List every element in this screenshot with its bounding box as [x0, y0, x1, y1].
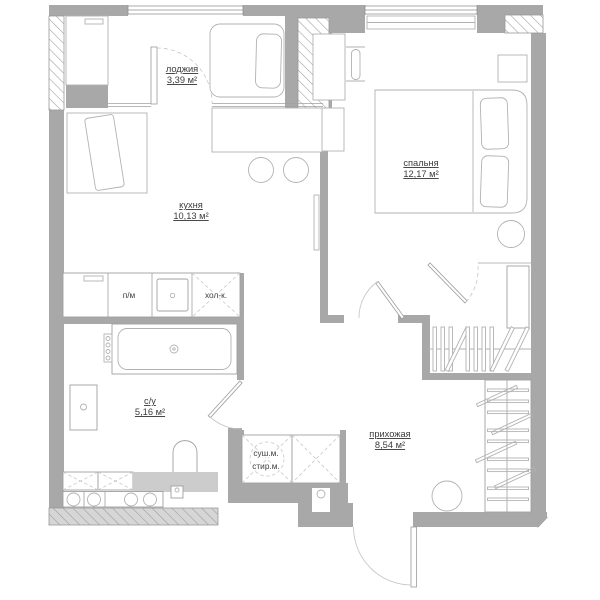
loggia-window [128, 5, 243, 17]
bathroom-label: с/у [144, 396, 156, 406]
bathroom-door [208, 381, 242, 429]
kitchen-label: кухня [179, 200, 203, 210]
hallway-wardrobe [475, 380, 535, 512]
pouf [432, 481, 462, 511]
desk-chair [352, 50, 361, 80]
former-balcony-door-frame [151, 47, 157, 104]
low-cabinet [322, 108, 344, 151]
loggia-area: 3,39 м² [167, 75, 197, 85]
kitchen-area: 10,13 м² [173, 211, 208, 221]
hallway-area: 8,54 м² [375, 440, 405, 450]
bedroom-area: 12,17 м² [403, 169, 438, 179]
chaise-lounge [84, 114, 124, 191]
bedroom-label: спальня [403, 158, 438, 168]
hanger [466, 327, 470, 371]
bedroom-window [365, 5, 477, 30]
fridge-label: хол-к. [205, 290, 227, 300]
vanity-sink [70, 385, 97, 430]
double-bed [375, 90, 527, 213]
bar-counter [212, 108, 323, 152]
hallway-label: прихожая [369, 429, 410, 439]
daybed [210, 24, 284, 97]
wall-shelf [314, 195, 319, 250]
entrance-door [354, 527, 417, 587]
hanger [474, 327, 478, 371]
bedroom [313, 34, 527, 248]
hanger [441, 327, 445, 371]
dishwasher-label: п/м [123, 290, 136, 300]
toilet [173, 441, 197, 475]
wardrobe-cabinet [507, 266, 529, 328]
bar-stool [284, 158, 309, 183]
built-in-cabinet [66, 16, 108, 85]
wall-niche [312, 488, 330, 512]
hanger [433, 327, 437, 371]
hall-storage-box [292, 435, 340, 483]
bedroom-stool [498, 221, 525, 248]
hanger [482, 327, 486, 371]
washer-label: стир.м. [252, 461, 280, 471]
floor-plan-drawing: лоджия 3,39 м² кухня 10,13 м² спальня 12… [0, 0, 600, 600]
bedroom-door [428, 263, 478, 303]
kitchen-sink [157, 279, 188, 311]
towel-rail [104, 334, 112, 362]
apartment-floor-plan: лоджия 3,39 м² кухня 10,13 м² спальня 12… [0, 0, 600, 600]
doors [208, 263, 478, 587]
loggia-label: лоджия [166, 64, 198, 74]
dryer-label: суш.м. [253, 448, 278, 458]
bathtub [112, 324, 237, 374]
desk [313, 34, 345, 100]
nightstand [498, 55, 527, 82]
bar-stool [249, 158, 274, 183]
bathroom-area: 5,16 м² [135, 407, 165, 417]
kitchen-door [359, 282, 404, 319]
